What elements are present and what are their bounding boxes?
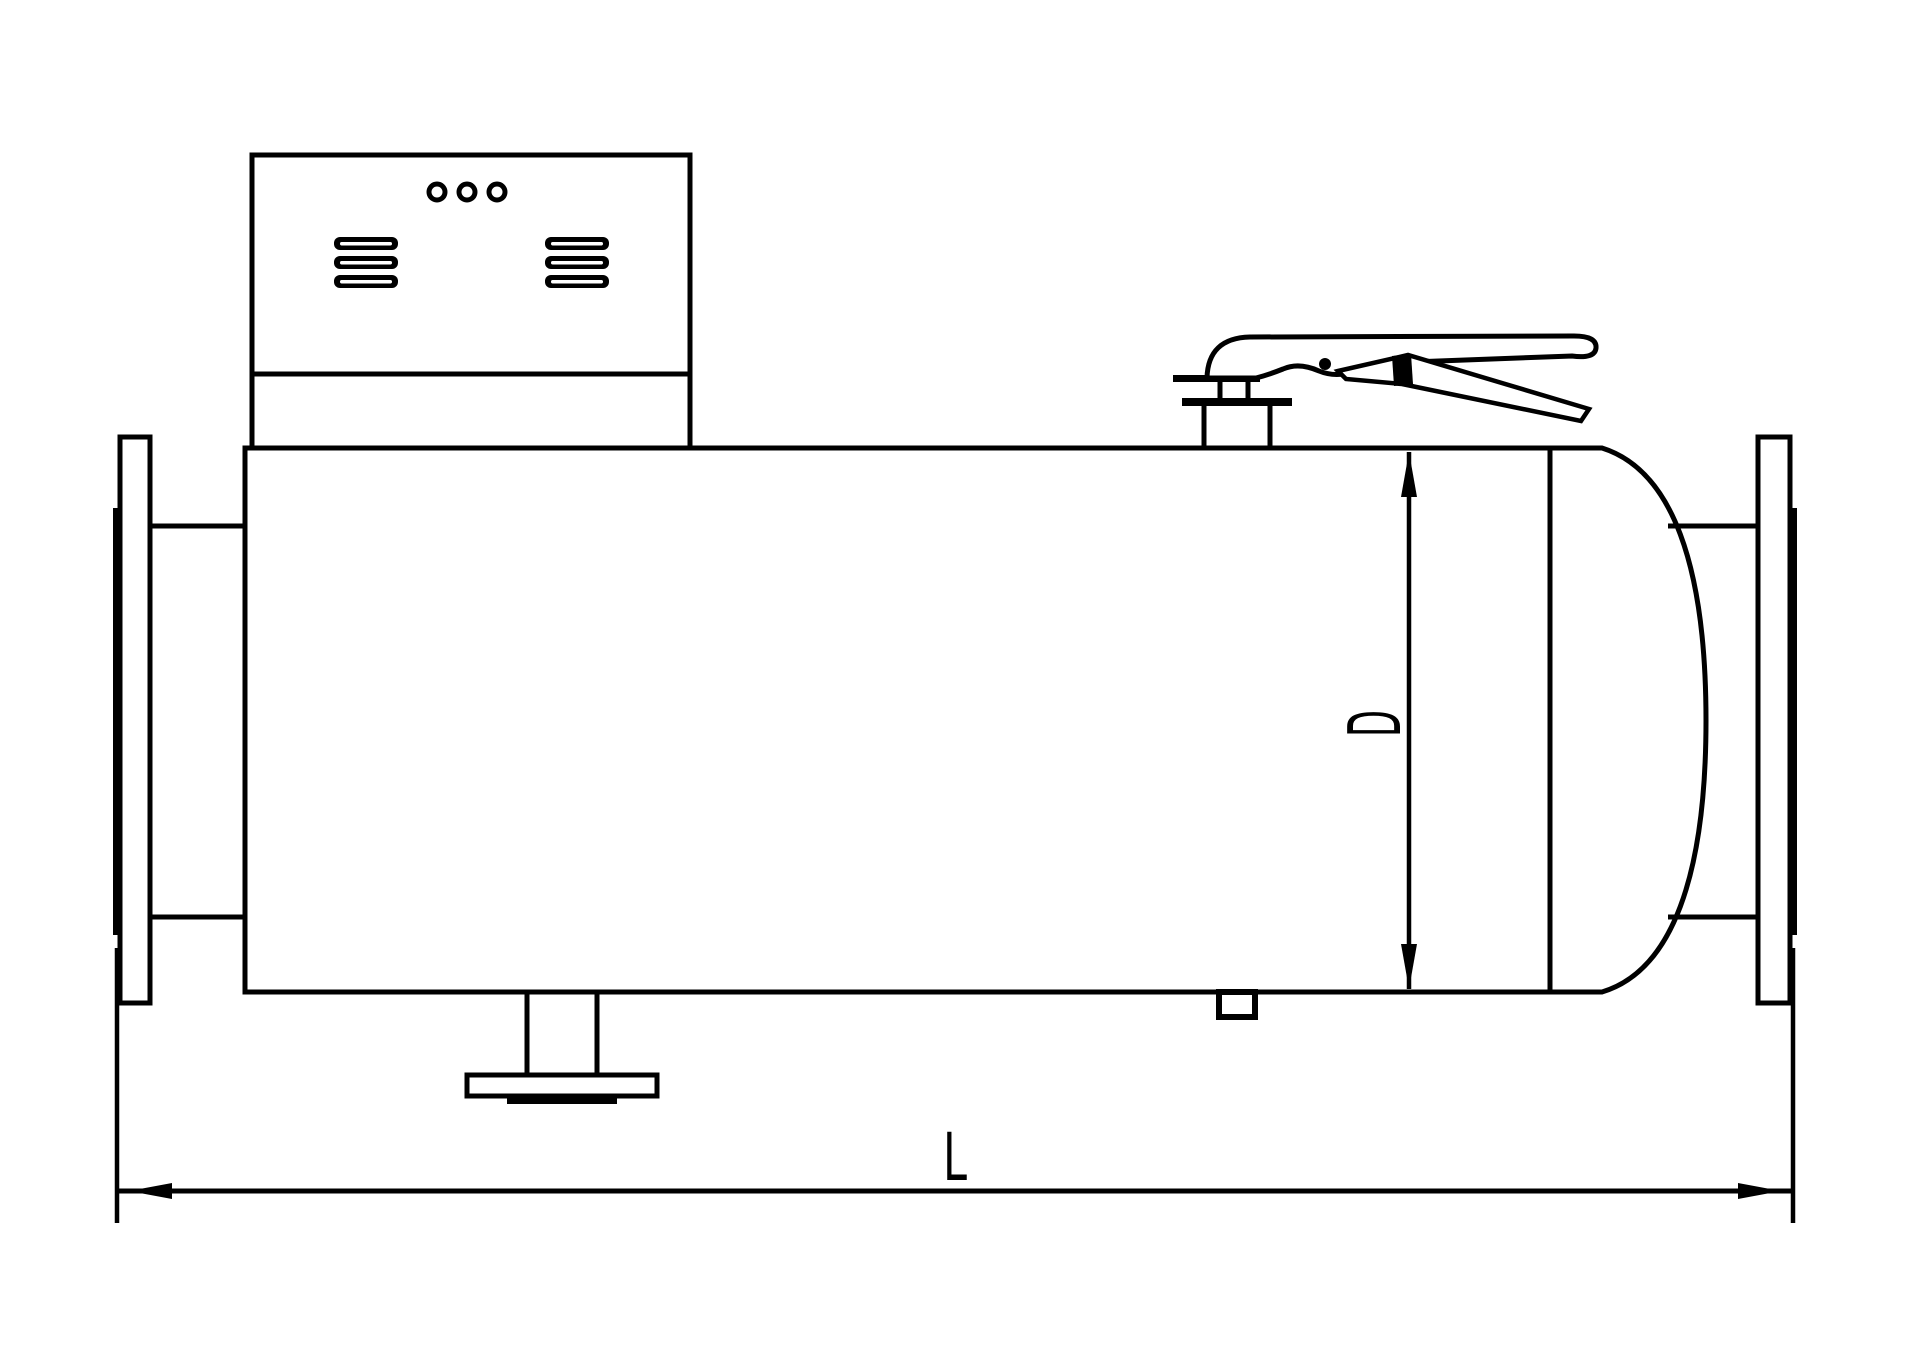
engineering-drawing: D L [0, 0, 1920, 1358]
indicator-dots-icon [429, 184, 505, 200]
vent-louver-right-icon [545, 237, 609, 288]
dimension-L-arrow-right-icon [1738, 1183, 1781, 1199]
vent-louver-left-icon [334, 237, 398, 288]
dimension-L-arrow-left-icon [129, 1183, 172, 1199]
bottom-drain-nozzle [467, 992, 657, 1104]
right-flange-raised-face [1790, 508, 1797, 935]
shell-outline [245, 448, 1706, 992]
handle-lower-arm [1338, 355, 1589, 421]
diameter-label: D [1333, 710, 1417, 737]
top-nozzle [1173, 375, 1292, 450]
left-flange-connection [113, 437, 247, 1003]
length-label: L [943, 1119, 967, 1196]
drain-flange [467, 1075, 657, 1096]
drain-flange-raised-face [507, 1096, 617, 1104]
left-flange-raised-face [113, 508, 120, 935]
right-flange-disc [1758, 437, 1790, 1003]
drawing-canvas: D L [0, 0, 1920, 1358]
handle-latch-block [1392, 354, 1413, 386]
top-nozzle-flange [1182, 398, 1292, 406]
vessel-shell [245, 448, 1706, 992]
control-box [252, 155, 690, 449]
small-plug [1219, 992, 1255, 1017]
handle-pivot-pin-icon [1319, 358, 1331, 370]
left-flange-disc [120, 437, 150, 1003]
quick-release-handle [1207, 336, 1596, 421]
